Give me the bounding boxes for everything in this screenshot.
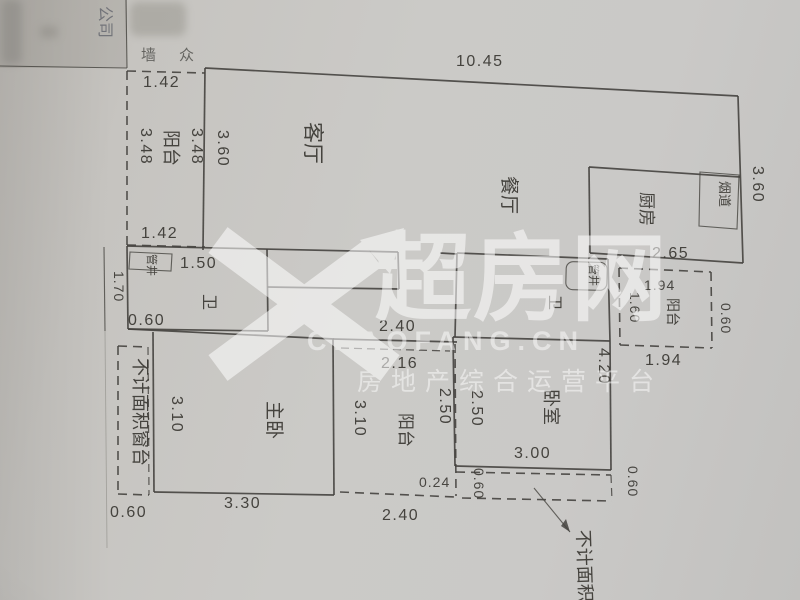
sheet-edge-horizontal [0, 66, 127, 68]
dim-living-left: 3.60 [214, 130, 231, 167]
dim-master-bottom: 3.30 [224, 495, 261, 512]
dim-lb-top: 1.42 [143, 74, 180, 91]
room-label-flue: 烟道 [717, 181, 732, 207]
watermark-domain: CHAOFANG.CN [307, 326, 585, 356]
wall-balcony-bottom-left [333, 339, 334, 495]
watermark: 超房网 CHAOFANG.CN 房地产综合运营平台 [218, 226, 669, 396]
dim-right-side: 3.60 [749, 166, 766, 203]
note-sill-left: 不计面积窗台 [130, 358, 150, 466]
dim-bath1-top: 1.50 [180, 255, 217, 272]
dim-lb-bottom: 1.42 [141, 225, 178, 242]
note-sill-bottom: 不计面积 [573, 529, 596, 600]
dim-gap: 0.24 [419, 474, 450, 490]
stamp-char-a: 墙 [141, 47, 156, 64]
sill-box-bottom [118, 494, 149, 495]
dim-bb-bottom: 2.40 [382, 507, 419, 524]
dim-rb-right: 0.60 [718, 303, 734, 334]
dim-rb-bottom: 1.94 [645, 352, 682, 369]
room-label-kitchen: 厨房 [637, 192, 656, 226]
dim-sill-bottom-left: 0.60 [110, 504, 147, 521]
watermark-tagline: 房地产综合运营平台 [357, 368, 663, 396]
wall-kitchen-top [589, 167, 740, 177]
watermark-brand: 超房网 [375, 226, 669, 333]
dim-bb-left: 3.10 [351, 400, 368, 437]
dim-line-170 [104, 247, 105, 331]
room-label-balcony-left: 阳台 [161, 130, 181, 166]
balcony-left-top [127, 71, 205, 73]
dim-bath1-left: 1.70 [111, 271, 127, 302]
sill-box-top [118, 346, 148, 347]
leader-arrowhead-icon [561, 519, 570, 532]
bed-strip-right [611, 475, 612, 501]
wall-master-left [153, 332, 154, 492]
dim-gap-depth: 0.60 [471, 468, 487, 499]
balcony-right-bottom [620, 345, 712, 348]
dim-lb-left: 3.48 [137, 128, 154, 165]
balcony-right-right [711, 272, 712, 348]
paper-crease [105, 331, 107, 548]
floorplan-photo: 公司 墙 众 [0, 0, 800, 600]
stamp-char-b: 众 [179, 47, 194, 64]
room-label-shaft-left: 管井 [145, 254, 159, 276]
wall-top [205, 68, 738, 96]
room-label-master: 主卧 [263, 401, 285, 439]
dim-top-width: 10.45 [456, 53, 504, 70]
dim-bed-bottom: 3.00 [514, 445, 551, 462]
room-label-bath-left: 卫 [200, 294, 217, 310]
floorplan-drawing: 公司 墙 众 [0, 0, 800, 600]
balcony-bottom-bottom [340, 492, 456, 497]
room-label-living: 客厅 [301, 122, 324, 164]
dim-master-left: 3.10 [168, 396, 185, 433]
balcony-bottom-right-edge [455, 344, 456, 496]
room-label-balcony-bottom: 阳台 [396, 413, 415, 447]
dim-bath1-bottom: 0.60 [128, 312, 165, 329]
stamp-company-text: 公司 [96, 6, 113, 38]
room-label-dining: 餐厅 [498, 176, 520, 214]
stamp-marks: 公司 墙 众 [96, 6, 194, 64]
dim-bed-strip: 0.60 [625, 466, 641, 497]
dim-lb-right: 3.48 [188, 128, 205, 165]
sheet-edge-vertical [126, 0, 127, 68]
note-leader [534, 488, 570, 532]
